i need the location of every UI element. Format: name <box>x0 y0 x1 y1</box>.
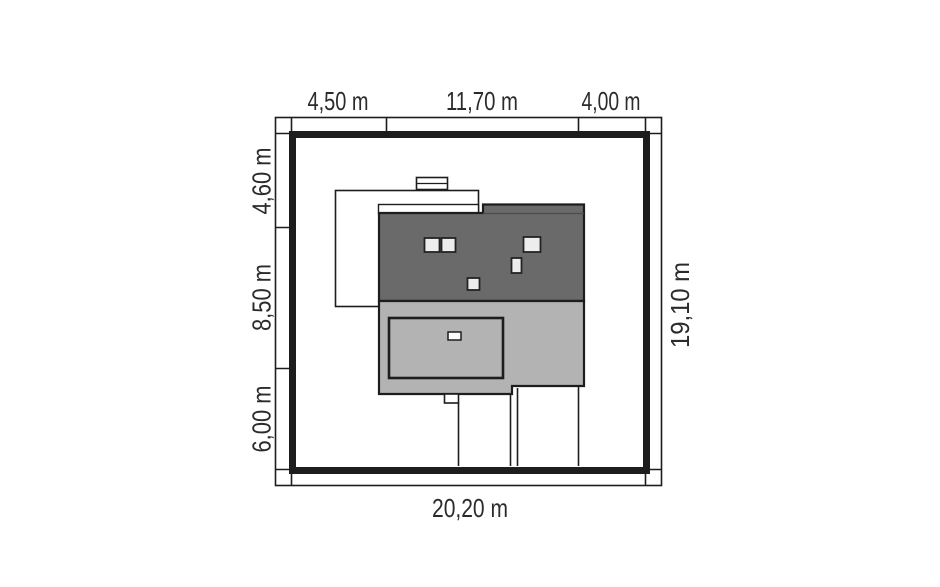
roof-window <box>442 238 456 252</box>
site-plan-drawing: 4,50 m 11,70 m 4,00 m 4,60 m 8,50 m 6,00… <box>0 0 940 587</box>
entrance-step <box>445 394 459 403</box>
dim-left-1-label: 4,60 m <box>247 148 277 215</box>
roof-window <box>512 258 522 273</box>
dim-top-3-label: 4,00 m <box>582 86 641 116</box>
dim-top-1-label: 4,50 m <box>308 86 369 116</box>
site-plan-page: 4,50 m 11,70 m 4,00 m 4,60 m 8,50 m 6,00… <box>0 0 940 587</box>
roof-window <box>524 237 541 252</box>
roof-window <box>468 278 480 290</box>
roof-window <box>425 238 440 252</box>
dim-top-2-label: 11,70 m <box>446 86 518 116</box>
dim-bottom-label: 20,20 m <box>432 493 508 523</box>
dim-left-3-label: 6,00 m <box>247 386 277 453</box>
terrace-detail <box>448 332 461 340</box>
dim-right-label: 19,10 m <box>665 262 695 348</box>
terrace <box>389 318 503 378</box>
roof-dark-plane <box>379 205 584 302</box>
dim-left-2-label: 8,50 m <box>247 264 277 331</box>
